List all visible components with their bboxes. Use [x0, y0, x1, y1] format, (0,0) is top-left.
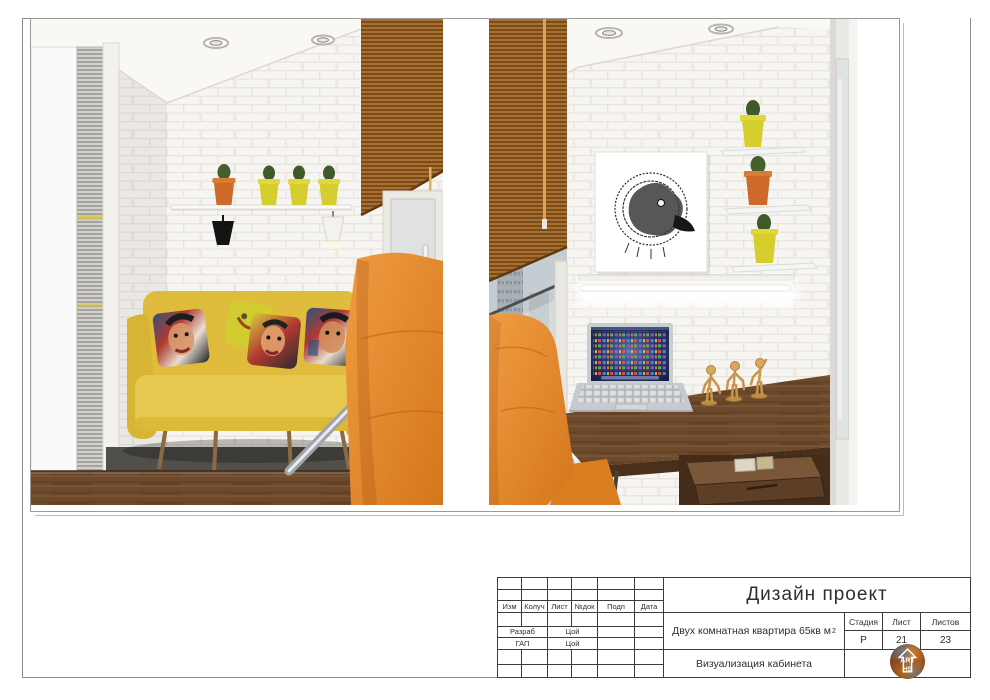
balcony-lounge-render	[31, 19, 443, 505]
stage-value: Р	[845, 631, 883, 650]
sheet-header: Лист	[883, 613, 921, 631]
col-header: Дата	[635, 601, 664, 613]
svg-text:HS: HS	[903, 666, 913, 673]
desk-edge-foreground	[31, 471, 367, 505]
panel-shadow-bottom	[35, 515, 904, 516]
art-pillows	[152, 300, 361, 369]
wooden-mannequins	[701, 359, 767, 406]
svg-text:ART: ART	[900, 656, 915, 665]
project-type-title: Дизайн проект	[664, 578, 970, 613]
arthaus-logo-icon: ART HS	[890, 644, 925, 679]
sheets-value: 23	[921, 631, 970, 650]
framed-artwork	[595, 152, 710, 275]
col-header: Лист	[548, 601, 572, 613]
col-header: Колуч	[522, 601, 548, 613]
drawing-title: Визуализация кабинета	[664, 650, 845, 677]
signature-name: Цой	[548, 627, 598, 639]
design-project-sheet: Изм Колуч Лист №док Подп Дата Разраб Цой…	[0, 0, 990, 700]
pillow-face-art	[246, 313, 301, 370]
drawer-unit	[679, 455, 830, 505]
yellow-sofa	[123, 291, 383, 473]
led-light-strip	[577, 275, 797, 307]
orange-chair-back	[345, 253, 443, 505]
roller-blinds-left	[489, 19, 567, 281]
signature-role: Разраб	[498, 627, 548, 639]
signature-role: ГАП	[498, 638, 548, 650]
title-block: Изм Колуч Лист №док Подп Дата Разраб Цой…	[497, 577, 971, 678]
revision-table: Изм Колуч Лист №док Подп Дата Разраб Цой…	[498, 578, 664, 677]
col-header: Подп	[598, 601, 635, 613]
company-logo: ART HS	[845, 650, 970, 677]
object-name: Двух комнатная квартира 65кв м2	[664, 613, 845, 650]
col-header: Изм	[498, 601, 522, 613]
stage-header: Стадия	[845, 613, 883, 631]
col-header: №док	[572, 601, 598, 613]
frame-left-line	[22, 18, 23, 678]
window-right-edge	[830, 19, 857, 505]
sheets-header: Листов	[921, 613, 970, 631]
balcony-door-left	[31, 43, 119, 505]
home-office-render	[489, 19, 857, 505]
panel-shadow-right	[903, 23, 904, 516]
pillow-face-art	[152, 308, 210, 368]
wall-lamp-white	[322, 211, 344, 249]
signature-name: Цой	[548, 638, 598, 650]
